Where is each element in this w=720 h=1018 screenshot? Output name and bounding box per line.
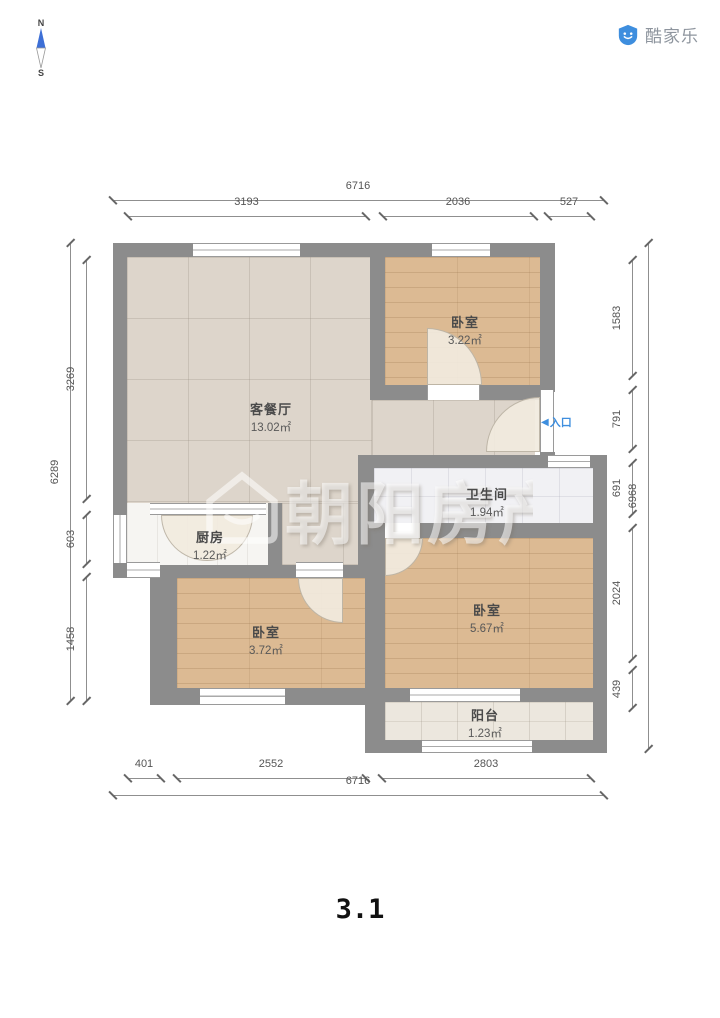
dimension-label: 2036 [446, 196, 470, 208]
window [422, 740, 532, 753]
brand-logo: 酷家乐 [617, 22, 699, 47]
entrance-label: 入口 [550, 414, 572, 430]
room-area: 1.23㎡ [468, 725, 502, 741]
room-label-kitchen: 厨房1.22㎡ [193, 527, 227, 563]
room-name: 卧室 [470, 600, 504, 619]
room-area: 13.02㎡ [250, 419, 292, 435]
dimension: 2036 [383, 210, 533, 222]
dimension: 527 [548, 210, 590, 222]
room-name: 卧室 [448, 312, 482, 331]
dimension-label: 2024 [611, 581, 623, 605]
dimension-label: 1583 [611, 305, 623, 329]
door-leaf [296, 562, 343, 578]
room-label-living-dining: 客餐厅13.02㎡ [250, 399, 292, 435]
door-opening [427, 385, 480, 400]
wall [148, 565, 385, 578]
dimension: 1458 [80, 577, 92, 700]
dimension-label: 603 [65, 530, 77, 548]
dimension-label: 401 [135, 758, 153, 770]
wall [593, 455, 607, 753]
wall [370, 257, 385, 400]
dimension-label: 6716 [346, 775, 370, 787]
dimension: 2552 [177, 772, 365, 784]
dimension-label: 2803 [474, 758, 498, 770]
dimension-label: 1458 [65, 626, 77, 650]
room-name: 卫生间 [466, 484, 508, 503]
living-floor [127, 257, 372, 503]
wall [365, 565, 385, 702]
room-area: 5.67㎡ [470, 620, 504, 636]
room-area: 3.72㎡ [249, 642, 283, 658]
room-name: 阳台 [468, 705, 502, 724]
room-name: 客餐厅 [250, 399, 292, 418]
compass: N S [30, 18, 52, 78]
dimension-label: 439 [611, 679, 623, 697]
floor-plan-page: N S 酷家乐 [0, 0, 720, 1018]
dimension-label: 3193 [234, 196, 258, 208]
entrance-marker: ◀ 入口 [541, 414, 572, 430]
window [113, 515, 127, 563]
compass-south-label: S [30, 68, 52, 78]
scene-title: 3.1 [0, 894, 720, 925]
room-label-bathroom: 卫生间1.94㎡ [466, 484, 508, 520]
window [200, 688, 285, 705]
dimension-label: 6289 [49, 459, 61, 483]
dimension: 6968 [642, 243, 654, 748]
dimension-label: 3269 [65, 367, 77, 391]
wall [540, 257, 555, 392]
dimension-label: 2552 [259, 758, 283, 770]
compass-north-label: N [30, 18, 52, 28]
dimension-label: 791 [611, 410, 623, 428]
room-name: 卧室 [249, 622, 283, 641]
room-label-bedroom-top: 卧室3.22㎡ [448, 312, 482, 348]
window [127, 562, 160, 578]
window [548, 455, 590, 468]
entrance-arrow-icon: ◀ [541, 417, 549, 428]
wall [268, 503, 282, 565]
window [432, 243, 490, 257]
door-opening [385, 523, 420, 538]
room-label-balcony: 阳台1.23㎡ [468, 705, 502, 741]
room-area: 3.22㎡ [448, 332, 482, 348]
dimension: 3193 [128, 210, 365, 222]
living-floor-column [282, 503, 358, 565]
room-label-bedroom-left: 卧室3.72㎡ [249, 622, 283, 658]
dimension-label: 527 [560, 196, 578, 208]
kujiale-logo-icon [617, 24, 639, 46]
compass-needle-icon [34, 28, 48, 68]
dimension: 6716 [113, 789, 603, 801]
window [193, 243, 300, 257]
dimension-label: 691 [611, 479, 623, 497]
room-name: 厨房 [193, 527, 227, 546]
door-opening [150, 503, 266, 515]
room-label-bedroom-right: 卧室5.67㎡ [470, 600, 504, 636]
dimension: 2803 [382, 772, 590, 784]
dimension-label: 6716 [346, 180, 370, 192]
dimension: 6716 [113, 194, 603, 206]
room-area: 1.22㎡ [193, 547, 227, 563]
brand-logo-text: 酷家乐 [645, 22, 699, 47]
wall [358, 455, 374, 565]
room-area: 1.94㎡ [466, 504, 508, 520]
window [410, 688, 520, 702]
dimension: 3269 [80, 260, 92, 498]
dimension: 603 [80, 515, 92, 563]
dimension: 401 [128, 772, 160, 784]
wall [374, 538, 385, 565]
dimension-label: 6968 [627, 483, 639, 507]
wall [150, 565, 177, 705]
